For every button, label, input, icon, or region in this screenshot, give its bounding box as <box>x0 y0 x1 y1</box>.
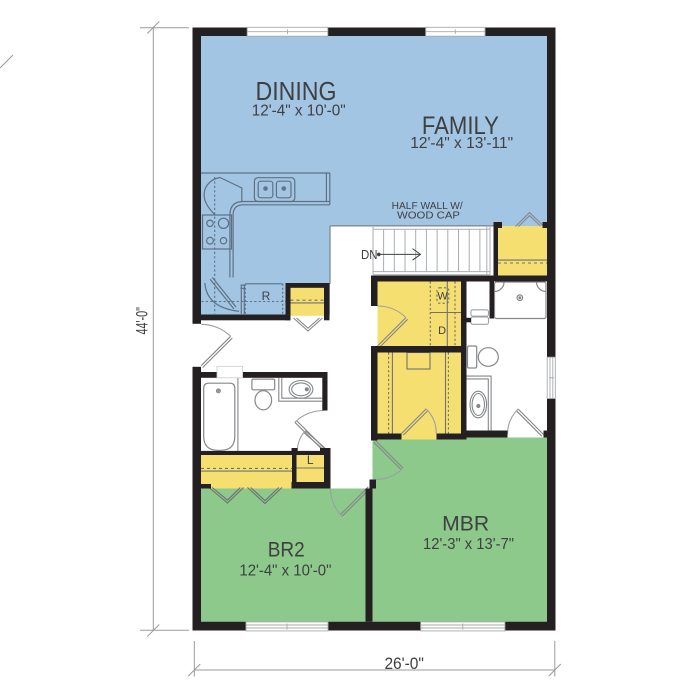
svg-text:W: W <box>437 291 448 303</box>
svg-text:12'-4" x 13'-11": 12'-4" x 13'-11" <box>410 135 513 152</box>
svg-text:26'-0": 26'-0" <box>384 654 424 673</box>
svg-text:MBR: MBR <box>442 513 489 536</box>
svg-text:L: L <box>307 453 314 467</box>
svg-text:DN: DN <box>361 247 378 262</box>
svg-text:R: R <box>262 289 271 303</box>
svg-text:44'-0": 44'-0" <box>134 307 152 335</box>
svg-text:12'-4" x 10'-0": 12'-4" x 10'-0" <box>239 563 331 580</box>
svg-text:DINING: DINING <box>256 76 337 106</box>
svg-text:12'-4" x 10'-0": 12'-4" x 10'-0" <box>252 103 346 120</box>
svg-text:12'-3" x 13'-7": 12'-3" x 13'-7" <box>423 536 514 553</box>
svg-text:D: D <box>438 325 446 337</box>
svg-text:BR2: BR2 <box>268 539 305 562</box>
svg-text:WOOD CAP: WOOD CAP <box>397 210 460 221</box>
